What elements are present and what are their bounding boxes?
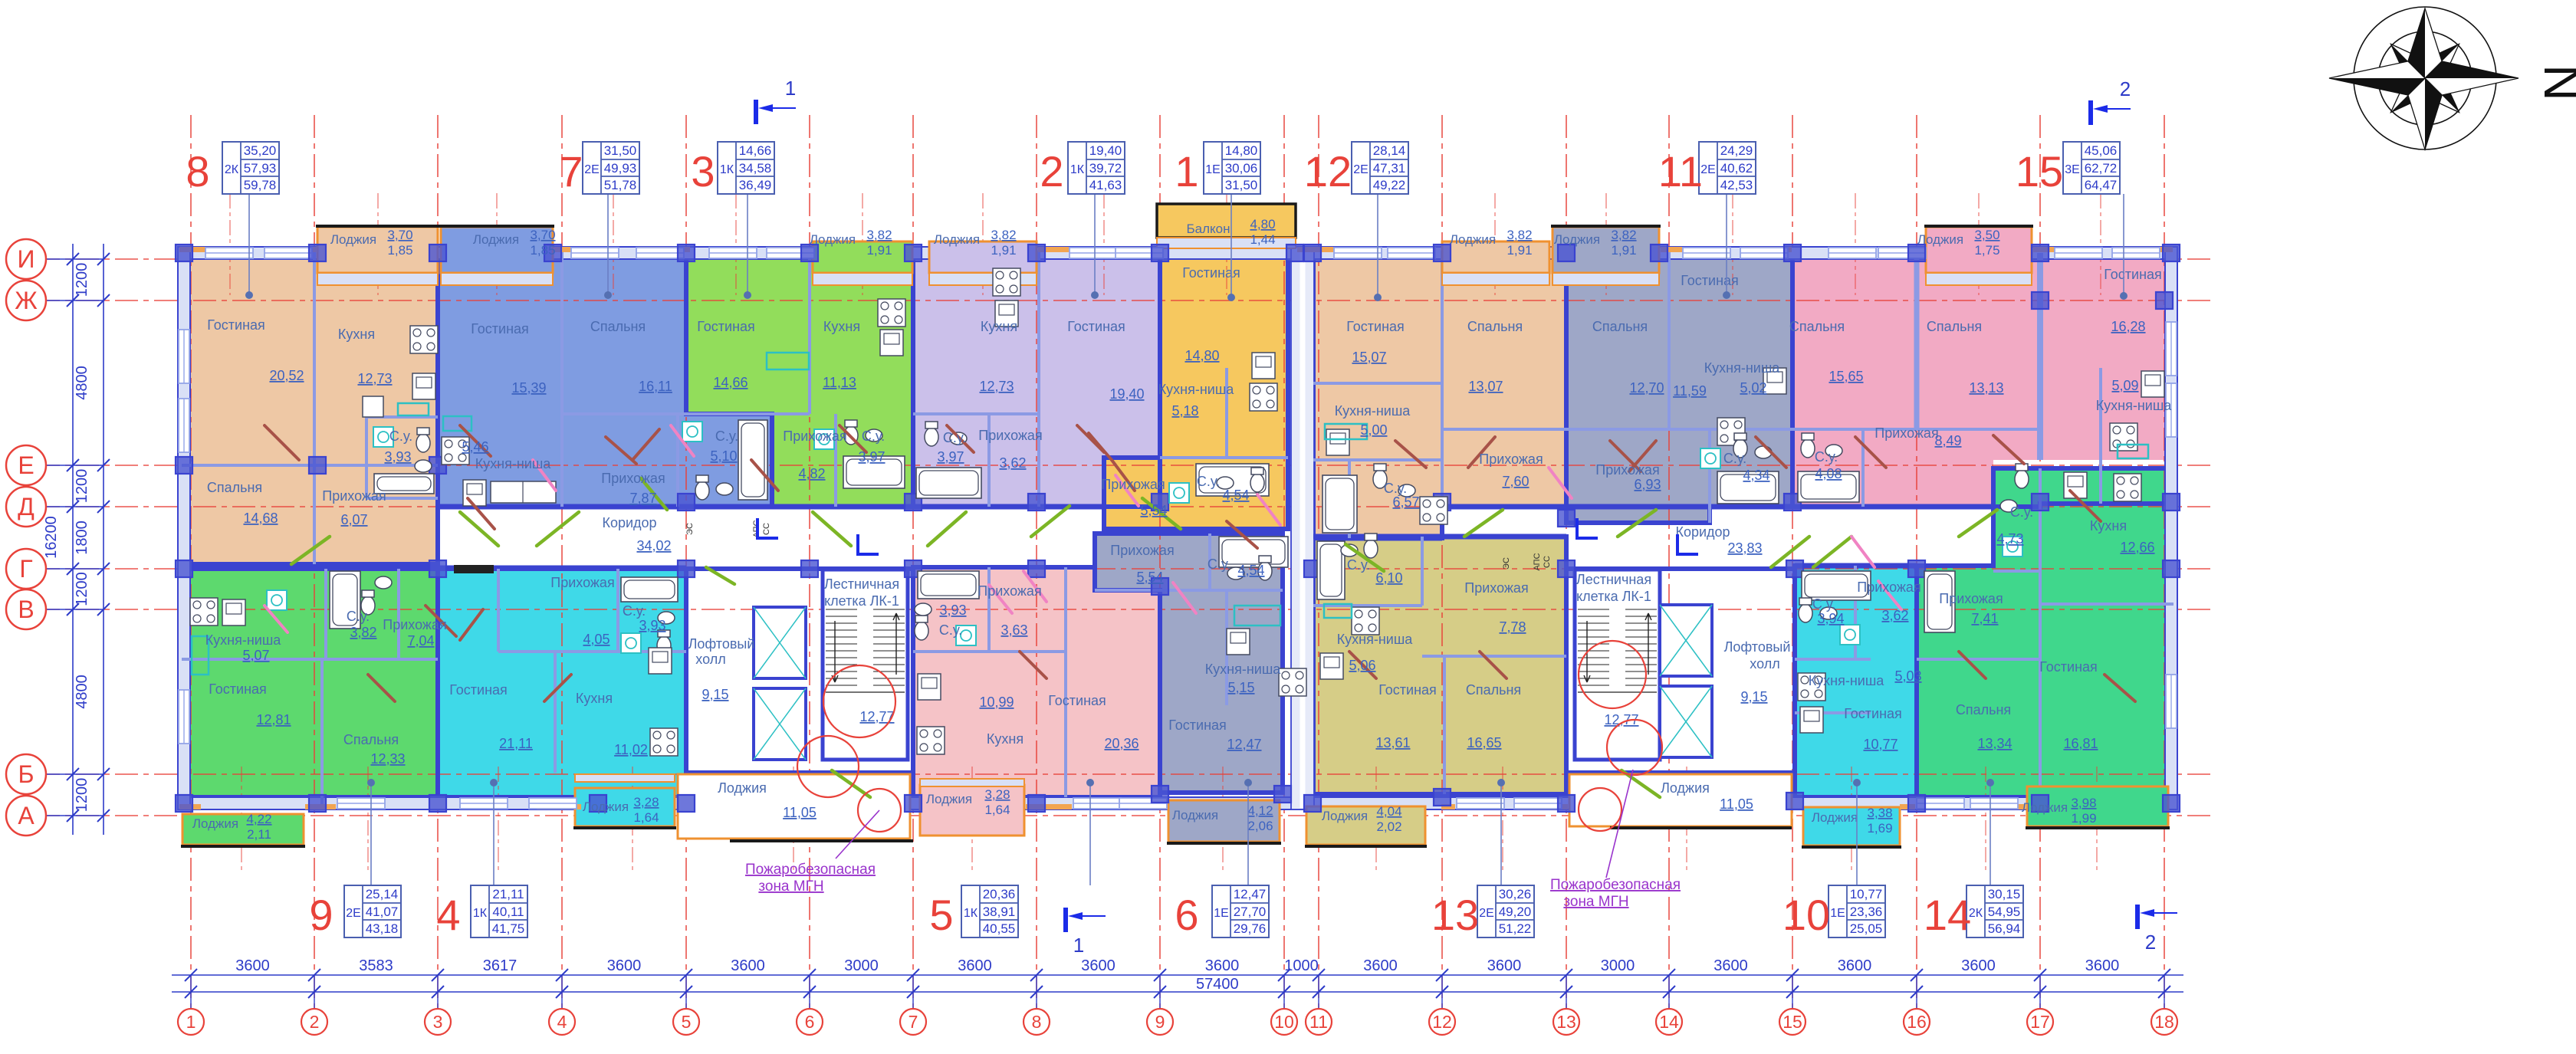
svg-text:5,02: 5,02 [1740, 380, 1766, 396]
svg-text:клетка ЛК-1: клетка ЛК-1 [824, 593, 899, 609]
svg-text:Кухня-ниша: Кухня-ниша [1335, 403, 1411, 419]
svg-text:4,08: 4,08 [1815, 466, 1842, 481]
svg-text:1,44: 1,44 [1250, 232, 1275, 247]
svg-text:Спальня: Спальня [1956, 702, 2011, 717]
svg-text:25,14: 25,14 [366, 887, 399, 901]
svg-text:Лоджия: Лоджия [1917, 232, 1963, 247]
svg-text:20,36: 20,36 [1104, 736, 1138, 751]
svg-text:холл: холл [695, 652, 725, 667]
svg-text:25,05: 25,05 [1850, 921, 1883, 936]
svg-text:35,20: 35,20 [244, 143, 277, 158]
svg-text:9,15: 9,15 [701, 687, 728, 702]
svg-text:А: А [18, 802, 34, 829]
svg-text:Прихожая: Прихожая [1857, 580, 1921, 595]
svg-text:23,83: 23,83 [1727, 540, 1762, 556]
svg-text:15: 15 [2016, 147, 2063, 195]
svg-text:11,05: 11,05 [1720, 796, 1753, 812]
svg-text:12: 12 [1304, 147, 1352, 195]
svg-text:19,40: 19,40 [1109, 386, 1144, 402]
svg-text:16: 16 [1907, 1012, 1927, 1032]
svg-text:49,20: 49,20 [1499, 905, 1532, 919]
svg-text:Е: Е [18, 451, 34, 479]
svg-text:Лоджия: Лоджия [2022, 800, 2068, 815]
svg-text:14,66: 14,66 [739, 143, 772, 158]
svg-text:3600: 3600 [607, 957, 642, 974]
svg-text:5: 5 [682, 1012, 692, 1032]
svg-text:38,91: 38,91 [983, 905, 1016, 919]
svg-text:Прихожая: Прихожая [1101, 477, 1165, 492]
svg-text:Спальня: Спальня [343, 732, 399, 747]
svg-text:11,13: 11,13 [823, 375, 856, 390]
svg-text:Лоджия: Лоджия [934, 232, 980, 247]
svg-text:Коридор: Коридор [1675, 524, 1730, 540]
svg-text:14,66: 14,66 [713, 375, 747, 390]
svg-text:41,75: 41,75 [492, 921, 525, 936]
svg-text:11: 11 [1658, 147, 1703, 195]
svg-text:29,76: 29,76 [1234, 921, 1267, 936]
svg-text:3,82: 3,82 [1611, 228, 1636, 242]
svg-text:43,18: 43,18 [366, 921, 399, 936]
svg-text:7,41: 7,41 [1971, 611, 1998, 626]
svg-text:15,07: 15,07 [1352, 350, 1386, 365]
svg-text:Лоджия: Лоджия [1554, 232, 1600, 247]
svg-text:3,93: 3,93 [639, 618, 665, 633]
svg-text:13: 13 [1556, 1012, 1576, 1032]
svg-text:Кухня-ниша: Кухня-ниша [2096, 398, 2173, 413]
svg-text:Спальня: Спальня [1789, 319, 1845, 334]
svg-text:3,70: 3,70 [530, 228, 555, 242]
svg-text:4,04: 4,04 [1376, 804, 1401, 819]
svg-text:Прихожая: Прихожая [1595, 462, 1659, 478]
svg-text:Лоджия: Лоджия [1172, 808, 1218, 823]
svg-text:11,59: 11,59 [1673, 383, 1707, 399]
svg-text:24,29: 24,29 [1720, 143, 1753, 158]
svg-text:С.у.: С.у. [943, 430, 966, 445]
svg-text:1,85: 1,85 [387, 243, 412, 258]
svg-text:Кухня: Кухня [981, 319, 1017, 334]
svg-text:8: 8 [186, 147, 209, 195]
svg-text:Гостиная: Гостиная [1844, 706, 1902, 721]
svg-text:5,18: 5,18 [1171, 403, 1198, 419]
svg-text:Лестничная: Лестничная [1576, 572, 1651, 587]
svg-text:С.у.: С.у. [1812, 596, 1835, 612]
svg-text:3,82: 3,82 [866, 228, 892, 242]
svg-text:5,54: 5,54 [1140, 503, 1167, 518]
svg-text:Лоджия: Лоджия [718, 780, 767, 796]
svg-text:2Е: 2Е [1700, 163, 1716, 176]
svg-text:2Е: 2Е [1479, 907, 1494, 920]
svg-text:Лоджия: Лоджия [1322, 809, 1368, 823]
svg-text:Б: Б [18, 760, 34, 788]
svg-text:Коридор: Коридор [602, 515, 656, 530]
svg-text:4,73: 4,73 [1996, 531, 2023, 547]
svg-text:Прихожая: Прихожая [1939, 591, 2003, 606]
svg-text:1,69: 1,69 [1867, 821, 1892, 836]
svg-text:Лоджия: Лоджия [1812, 810, 1858, 825]
svg-text:И: И [18, 245, 35, 273]
svg-text:5,15: 5,15 [1227, 680, 1254, 695]
svg-text:Гостиная: Гостиная [697, 319, 755, 334]
svg-text:49,93: 49,93 [604, 161, 637, 176]
svg-text:1000: 1000 [1284, 957, 1319, 974]
svg-text:Кухня: Кухня [338, 327, 375, 342]
svg-text:3,38: 3,38 [1867, 806, 1892, 820]
svg-text:зона МГН: зона МГН [758, 878, 823, 895]
svg-text:3000: 3000 [844, 957, 879, 974]
svg-text:14,80: 14,80 [1225, 143, 1258, 158]
svg-text:57,93: 57,93 [244, 161, 277, 176]
svg-text:13,34: 13,34 [1977, 736, 2012, 751]
svg-text:17: 17 [2030, 1012, 2050, 1032]
svg-text:9: 9 [1155, 1012, 1165, 1032]
svg-text:2,02: 2,02 [1376, 819, 1401, 834]
svg-text:34,02: 34,02 [636, 538, 671, 553]
svg-text:Лоджия: Лоджия [810, 232, 856, 247]
svg-text:12,47: 12,47 [1227, 737, 1261, 752]
svg-text:С.у.: С.у. [1347, 557, 1370, 573]
svg-text:1200: 1200 [74, 263, 90, 297]
svg-text:30,26: 30,26 [1499, 887, 1532, 901]
svg-text:С.у.: С.у. [1207, 557, 1230, 572]
svg-text:15,65: 15,65 [1829, 369, 1863, 384]
svg-text:клетка ЛК-1: клетка ЛК-1 [1576, 589, 1651, 604]
svg-text:12: 12 [1432, 1012, 1452, 1032]
svg-text:Кухня: Кухня [823, 319, 860, 334]
svg-text:2Е: 2Е [1353, 163, 1368, 176]
svg-text:Лоджия: Лоджия [926, 792, 972, 806]
svg-text:3600: 3600 [235, 957, 270, 974]
svg-text:Прихожая: Прихожая [978, 428, 1042, 443]
svg-text:3,97: 3,97 [858, 449, 885, 465]
svg-text:4,82: 4,82 [798, 466, 825, 481]
svg-text:1,91: 1,91 [991, 243, 1016, 258]
svg-text:3,62: 3,62 [1881, 608, 1908, 623]
svg-text:14,68: 14,68 [243, 511, 278, 526]
svg-text:Спальня: Спальня [590, 319, 646, 334]
svg-text:2,06: 2,06 [1247, 819, 1273, 833]
svg-text:Спальня: Спальня [1466, 682, 1521, 698]
svg-text:36,49: 36,49 [739, 178, 772, 192]
svg-text:Спальня: Спальня [1467, 319, 1523, 334]
svg-text:3,63: 3,63 [1001, 622, 1027, 638]
svg-text:41,07: 41,07 [366, 905, 399, 919]
svg-text:1,91: 1,91 [1506, 243, 1532, 258]
svg-text:Прихожая: Прихожая [1875, 425, 1938, 441]
svg-text:Лоджия: Лоджия [583, 800, 629, 814]
svg-text:11: 11 [1309, 1012, 1328, 1032]
svg-text:41,63: 41,63 [1089, 178, 1122, 192]
svg-text:Гостиная: Гостиная [471, 321, 529, 337]
svg-text:Прихожая: Прихожая [322, 488, 386, 504]
svg-text:6,57: 6,57 [1392, 494, 1419, 510]
svg-text:19,40: 19,40 [1089, 143, 1122, 158]
svg-text:1К: 1К [720, 163, 734, 176]
svg-text:6: 6 [1175, 891, 1198, 939]
svg-text:4: 4 [557, 1012, 567, 1032]
svg-text:3600: 3600 [731, 957, 765, 974]
svg-text:34,58: 34,58 [739, 161, 772, 176]
svg-text:4,05: 4,05 [583, 632, 609, 647]
svg-text:51,22: 51,22 [1499, 921, 1532, 936]
svg-text:Пожаробезопасная: Пожаробезопасная [1550, 877, 1681, 893]
svg-text:Прихожая: Прихожая [383, 617, 446, 632]
svg-text:С.у.: С.у. [623, 603, 646, 619]
svg-text:3,62: 3,62 [999, 455, 1026, 471]
svg-text:3,28: 3,28 [633, 795, 659, 809]
svg-text:Лофтовый: Лофтовый [1724, 639, 1791, 655]
svg-text:Лоджия: Лоджия [330, 232, 376, 247]
svg-text:С.у.: С.у. [715, 428, 738, 444]
svg-text:56,94: 56,94 [1988, 921, 2021, 936]
svg-text:1: 1 [785, 77, 796, 100]
svg-text:Кухня-ниша: Кухня-ниша [1809, 673, 1885, 688]
svg-text:30,06: 30,06 [1225, 161, 1258, 176]
svg-text:16,28: 16,28 [2111, 319, 2145, 334]
svg-text:Гостиная: Гостиная [1067, 319, 1125, 334]
svg-text:Гостиная: Гостиная [2039, 659, 2098, 675]
svg-text:С.у.: С.у. [1384, 481, 1407, 496]
svg-text:6,10: 6,10 [1375, 570, 1402, 586]
svg-text:12,73: 12,73 [979, 379, 1014, 394]
svg-text:3Е: 3Е [2065, 163, 2080, 176]
svg-text:57400: 57400 [1196, 976, 1239, 993]
svg-text:Прихожая: Прихожая [783, 428, 846, 444]
svg-text:5,03: 5,03 [1894, 668, 1921, 684]
svg-text:3: 3 [433, 1012, 443, 1032]
svg-text:4800: 4800 [74, 366, 90, 400]
svg-text:23,36: 23,36 [1850, 905, 1883, 919]
svg-text:ЭС: ЭС [685, 523, 695, 535]
svg-text:12,66: 12,66 [2120, 540, 2154, 555]
svg-text:Балкон: Балкон [1186, 222, 1230, 236]
svg-text:9: 9 [309, 891, 333, 939]
svg-text:15,39: 15,39 [511, 380, 546, 396]
svg-text:Прихожая: Прихожая [1110, 543, 1174, 558]
svg-text:Гостиная: Гостиная [1378, 682, 1437, 698]
svg-text:54,95: 54,95 [1988, 905, 2021, 919]
svg-text:3,93: 3,93 [939, 603, 966, 618]
svg-text:10,77: 10,77 [1863, 737, 1898, 752]
svg-text:3,82: 3,82 [350, 625, 376, 640]
svg-text:3,97: 3,97 [937, 449, 964, 465]
svg-text:Спальня: Спальня [1592, 319, 1648, 334]
svg-text:2Е: 2Е [584, 163, 600, 176]
svg-text:31,50: 31,50 [1225, 178, 1258, 192]
svg-text:12,47: 12,47 [1234, 887, 1267, 901]
svg-text:1: 1 [1175, 147, 1198, 195]
svg-text:N: N [2534, 64, 2576, 101]
svg-text:Гостиная: Гостиная [2104, 267, 2162, 282]
svg-text:18: 18 [2154, 1012, 2174, 1032]
svg-text:3600: 3600 [1838, 957, 1872, 974]
svg-text:3,70: 3,70 [387, 228, 412, 242]
svg-text:Лоджия: Лоджия [1661, 780, 1710, 796]
svg-text:3,94: 3,94 [1817, 611, 1844, 626]
svg-text:зона МГН: зона МГН [1563, 894, 1628, 910]
svg-text:12,70: 12,70 [1629, 380, 1664, 396]
svg-text:3600: 3600 [1961, 957, 1996, 974]
svg-text:Д: Д [18, 493, 34, 520]
svg-text:7: 7 [559, 147, 583, 195]
svg-text:7,87: 7,87 [629, 491, 656, 506]
svg-text:Лоджия: Лоджия [192, 816, 238, 831]
svg-text:Кухня-ниша: Кухня-ниша [1704, 360, 1781, 376]
svg-text:13,07: 13,07 [1468, 379, 1503, 394]
svg-text:Кухня-ниша: Кухня-ниша [1205, 662, 1282, 677]
svg-text:10: 10 [1783, 891, 1830, 939]
svg-text:12,81: 12,81 [256, 712, 291, 727]
svg-text:4,54: 4,54 [1222, 488, 1249, 503]
svg-text:5,07: 5,07 [242, 648, 269, 663]
svg-text:АПС: АПС [1533, 553, 1542, 570]
svg-text:47,31: 47,31 [1373, 161, 1406, 176]
svg-text:39,72: 39,72 [1089, 161, 1122, 176]
svg-text:холл: холл [1750, 656, 1779, 671]
svg-text:3600: 3600 [2085, 957, 2120, 974]
svg-text:1,64: 1,64 [984, 803, 1010, 817]
svg-text:2Е: 2Е [346, 907, 361, 920]
svg-text:5,06: 5,06 [1349, 658, 1375, 673]
svg-text:62,72: 62,72 [2085, 161, 2118, 176]
svg-text:Ж: Ж [15, 287, 38, 314]
svg-text:1,91: 1,91 [866, 243, 892, 258]
svg-text:1: 1 [186, 1012, 196, 1032]
svg-text:С.у.: С.у. [939, 622, 962, 638]
svg-text:1: 1 [1073, 934, 1084, 957]
svg-text:6: 6 [805, 1012, 815, 1032]
svg-text:59,78: 59,78 [244, 178, 277, 192]
svg-text:2,11: 2,11 [247, 827, 271, 842]
svg-text:1800: 1800 [74, 520, 90, 555]
svg-text:1Е: 1Е [1214, 907, 1229, 920]
svg-text:21,11: 21,11 [499, 736, 533, 751]
svg-text:Кухня-ниша: Кухня-ниша [475, 456, 552, 471]
svg-text:3583: 3583 [359, 957, 393, 974]
svg-text:С.у.: С.у. [2010, 504, 2033, 520]
svg-text:3600: 3600 [1205, 957, 1240, 974]
svg-text:7: 7 [909, 1012, 918, 1032]
svg-text:3600: 3600 [1363, 957, 1398, 974]
svg-text:1,99: 1,99 [2071, 811, 2096, 826]
svg-text:8: 8 [1032, 1012, 1042, 1032]
svg-text:7,60: 7,60 [1502, 474, 1529, 489]
svg-text:5,54: 5,54 [1136, 570, 1163, 585]
svg-text:9,15: 9,15 [1740, 689, 1767, 704]
svg-text:13,61: 13,61 [1375, 735, 1410, 750]
svg-text:4,22: 4,22 [246, 812, 271, 826]
svg-text:49,22: 49,22 [1373, 178, 1406, 192]
svg-text:45,06: 45,06 [2085, 143, 2118, 158]
svg-text:4,54: 4,54 [1237, 563, 1264, 578]
svg-text:5: 5 [929, 891, 953, 939]
svg-text:40,55: 40,55 [983, 921, 1016, 936]
svg-text:21,11: 21,11 [492, 887, 524, 901]
svg-text:4,80: 4,80 [1250, 217, 1275, 231]
svg-text:51,78: 51,78 [604, 178, 637, 192]
svg-text:4,12: 4,12 [1247, 803, 1273, 818]
svg-text:20,36: 20,36 [983, 887, 1016, 901]
svg-text:Лоджия: Лоджия [473, 232, 519, 247]
svg-text:10,99: 10,99 [979, 694, 1014, 710]
svg-text:6,93: 6,93 [1634, 477, 1661, 492]
svg-text:1Е: 1Е [1205, 163, 1221, 176]
svg-text:31,50: 31,50 [604, 143, 637, 158]
svg-text:28,14: 28,14 [1373, 143, 1406, 158]
svg-text:11,05: 11,05 [783, 805, 816, 820]
svg-text:3600: 3600 [1081, 957, 1115, 974]
svg-text:Г: Г [19, 555, 32, 583]
svg-text:С.у.: С.у. [1815, 449, 1838, 465]
svg-text:Гостиная: Гостиная [1346, 319, 1405, 334]
svg-text:2: 2 [2145, 931, 2156, 954]
svg-text:16200: 16200 [43, 516, 60, 559]
svg-text:Кухня: Кухня [2090, 518, 2127, 534]
svg-text:Кухня-ниша: Кухня-ниша [1158, 382, 1235, 397]
svg-text:С.у.: С.у. [389, 428, 412, 444]
svg-text:5,10: 5,10 [710, 448, 737, 464]
svg-text:Кухня: Кухня [576, 691, 613, 706]
svg-text:10,77: 10,77 [1850, 887, 1883, 901]
svg-text:3,82: 3,82 [991, 228, 1016, 242]
svg-text:5,09: 5,09 [2111, 378, 2138, 393]
svg-text:6,07: 6,07 [340, 512, 367, 527]
svg-text:Лофтовый: Лофтовый [688, 636, 755, 652]
svg-text:10: 10 [1274, 1012, 1294, 1032]
svg-text:15: 15 [1783, 1012, 1802, 1032]
svg-text:27,70: 27,70 [1234, 905, 1267, 919]
svg-text:14: 14 [1659, 1012, 1679, 1032]
svg-text:1,85: 1,85 [530, 243, 555, 258]
svg-text:2: 2 [2120, 77, 2131, 100]
svg-text:Гостиная: Гостиная [1168, 717, 1227, 733]
svg-text:7,78: 7,78 [1499, 619, 1526, 635]
svg-text:Кухня-ниша: Кухня-ниша [1337, 632, 1414, 647]
svg-text:3,50: 3,50 [1974, 228, 1999, 242]
svg-text:Прихожая: Прихожая [550, 575, 614, 590]
svg-text:5,46: 5,46 [462, 439, 488, 455]
svg-text:СС: СС [1543, 556, 1552, 568]
svg-text:1К: 1К [964, 907, 978, 920]
svg-text:14: 14 [1924, 891, 1971, 939]
svg-text:16,81: 16,81 [2063, 736, 2098, 751]
svg-text:3,93: 3,93 [384, 449, 411, 465]
svg-text:13: 13 [1431, 891, 1479, 939]
svg-text:1Е: 1Е [1830, 907, 1845, 920]
svg-text:В: В [18, 596, 34, 623]
svg-text:2: 2 [310, 1012, 320, 1032]
svg-text:Прихожая: Прихожая [1464, 580, 1528, 596]
svg-text:ЭС: ЭС [1502, 557, 1511, 570]
svg-text:20,52: 20,52 [269, 368, 304, 383]
svg-text:2: 2 [1040, 147, 1063, 195]
svg-text:3,28: 3,28 [984, 787, 1010, 802]
svg-text:Прихожая: Прихожая [1479, 451, 1543, 467]
svg-text:30,15: 30,15 [1988, 887, 2021, 901]
svg-text:Гостиная: Гостиная [449, 682, 508, 698]
svg-text:8,49: 8,49 [1934, 433, 1961, 448]
svg-text:3000: 3000 [1601, 957, 1635, 974]
svg-text:Прихожая: Прихожая [601, 471, 665, 486]
svg-text:1,91: 1,91 [1611, 243, 1636, 258]
svg-text:1,64: 1,64 [633, 810, 659, 825]
svg-text:1К: 1К [473, 907, 488, 920]
svg-text:40,62: 40,62 [1720, 161, 1753, 176]
svg-text:Спальня: Спальня [207, 480, 262, 495]
svg-text:С.у.: С.у. [862, 428, 885, 444]
svg-text:С.у.: С.у. [1197, 474, 1220, 489]
svg-text:Гостиная: Гостиная [207, 317, 265, 333]
svg-text:14,80: 14,80 [1184, 348, 1219, 363]
